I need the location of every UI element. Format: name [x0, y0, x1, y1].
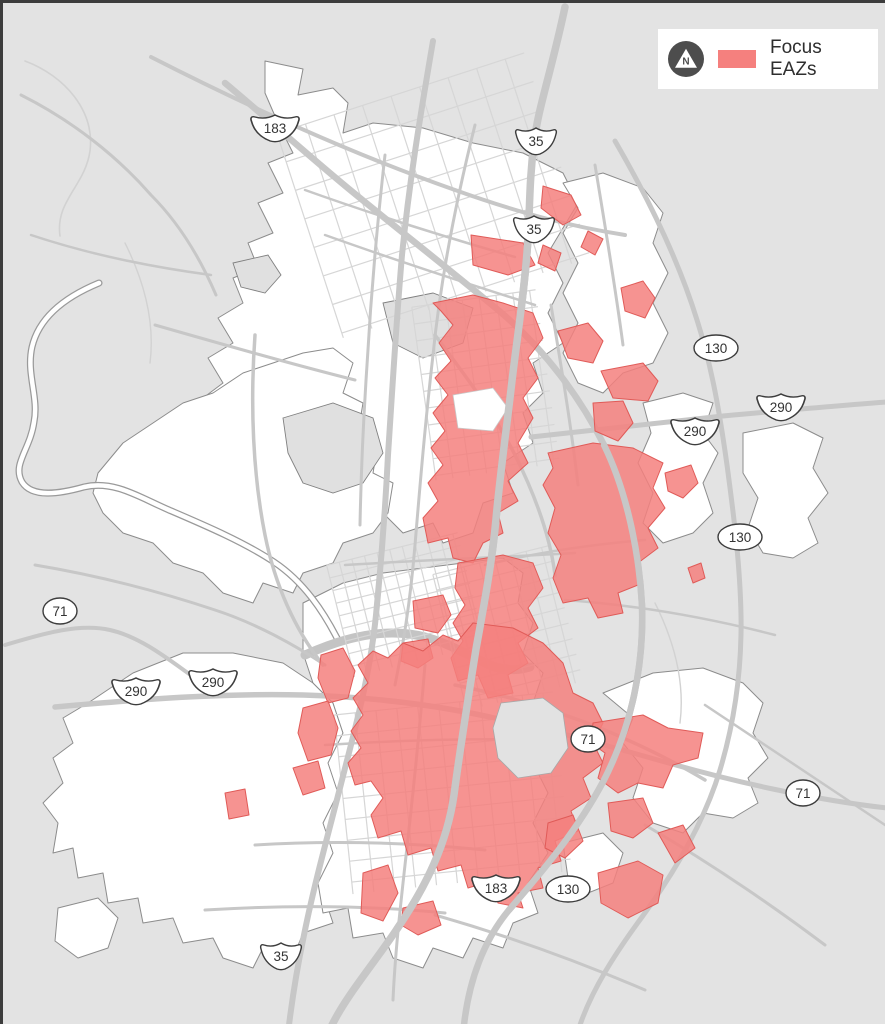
map-page: 183353513029029013071290290717118313035 … [0, 0, 885, 1024]
legend: N Focus EAZs [658, 29, 878, 89]
focus-eaz-polygon [225, 789, 249, 819]
route-shield-number: 71 [580, 732, 595, 747]
legend-label: Focus EAZs [770, 37, 868, 81]
route-shield-130: 130 [546, 876, 590, 902]
route-shield-number: 35 [273, 949, 288, 964]
route-shield-130: 130 [694, 335, 738, 361]
route-shield-number: 290 [684, 424, 707, 439]
north-arrow-letter: N [682, 56, 689, 67]
legend-swatch [718, 50, 756, 68]
route-shield-number: 183 [264, 121, 287, 136]
route-shield-number: 35 [528, 134, 543, 149]
route-shield-number: 183 [485, 881, 508, 896]
route-shield-number: 290 [770, 400, 793, 415]
route-shield-71: 71 [786, 780, 820, 806]
route-shield-number: 130 [557, 882, 580, 897]
route-shield-number: 130 [729, 530, 752, 545]
north-arrow-icon: N [668, 41, 704, 77]
route-shield-number: 130 [705, 341, 728, 356]
route-shield-number: 290 [125, 684, 148, 699]
route-shield-130: 130 [718, 524, 762, 550]
route-shield-number: 71 [795, 786, 810, 801]
map-canvas: 183353513029029013071290290717118313035 [3, 3, 885, 1024]
route-shield-number: 35 [526, 222, 541, 237]
route-shield-number: 290 [202, 675, 225, 690]
route-shield-number: 71 [52, 604, 67, 619]
route-shield-71: 71 [43, 598, 77, 624]
route-shield-71: 71 [571, 726, 605, 752]
